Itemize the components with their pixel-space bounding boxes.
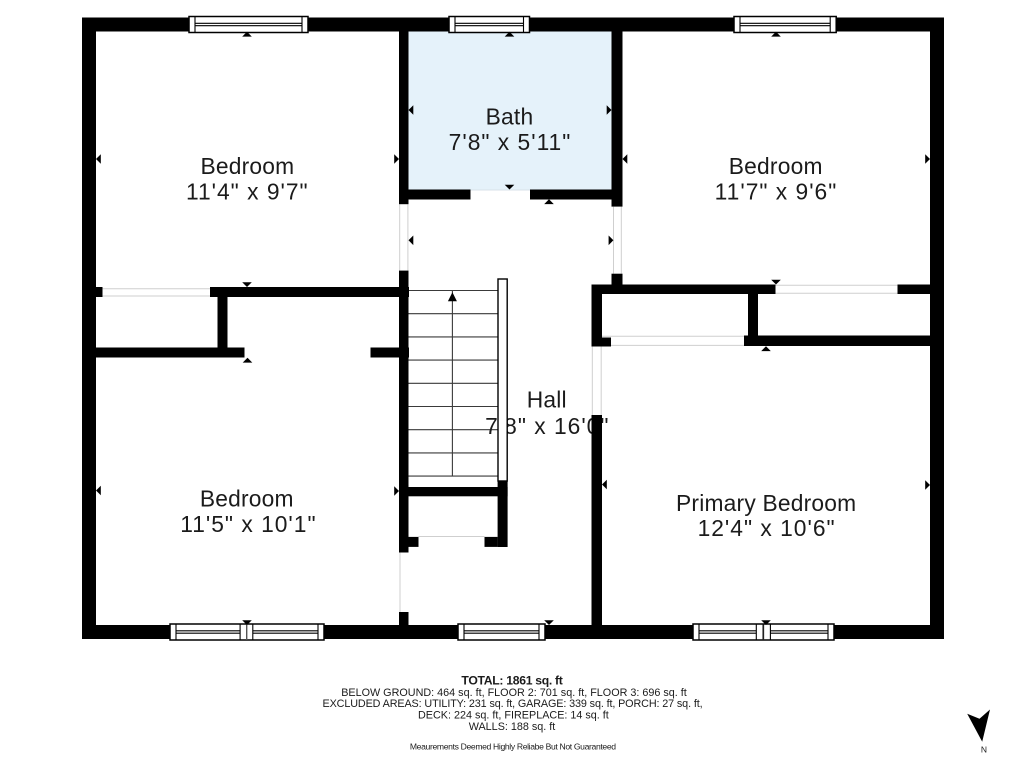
- svg-text:Meaurements Deemed Highly Reli: Meaurements Deemed Highly Reliabe But No…: [410, 742, 616, 752]
- svg-text:7'8" x 5'11": 7'8" x 5'11": [449, 129, 572, 155]
- svg-text:Hall: Hall: [527, 387, 567, 413]
- svg-text:Bath: Bath: [486, 104, 534, 130]
- svg-text:TOTAL: 1861 sq. ft: TOTAL: 1861 sq. ft: [461, 673, 562, 687]
- svg-text:N: N: [981, 745, 987, 755]
- svg-text:11'7" x 9'6": 11'7" x 9'6": [715, 179, 838, 205]
- svg-text:WALLS: 188 sq. ft: WALLS: 188 sq. ft: [469, 721, 556, 733]
- svg-text:Bedroom: Bedroom: [200, 485, 294, 511]
- svg-text:11'4" x 9'7": 11'4" x 9'7": [186, 179, 309, 205]
- svg-text:Primary Bedroom: Primary Bedroom: [676, 490, 856, 516]
- svg-text:11'5" x 10'1": 11'5" x 10'1": [180, 511, 316, 537]
- svg-text:EXCLUDED AREAS: UTILITY: 231 s: EXCLUDED AREAS: UTILITY: 231 sq. ft, GAR…: [323, 698, 703, 710]
- svg-text:Bedroom: Bedroom: [729, 153, 823, 179]
- svg-text:Bedroom: Bedroom: [200, 153, 294, 179]
- svg-text:BELOW GROUND: 464 sq. ft, FLOO: BELOW GROUND: 464 sq. ft, FLOOR 2: 701 s…: [341, 687, 687, 699]
- svg-text:DECK: 224 sq. ft, FIREPLACE: 1: DECK: 224 sq. ft, FIREPLACE: 14 sq. ft: [418, 710, 609, 722]
- svg-text:12'4" x 10'6": 12'4" x 10'6": [698, 515, 836, 541]
